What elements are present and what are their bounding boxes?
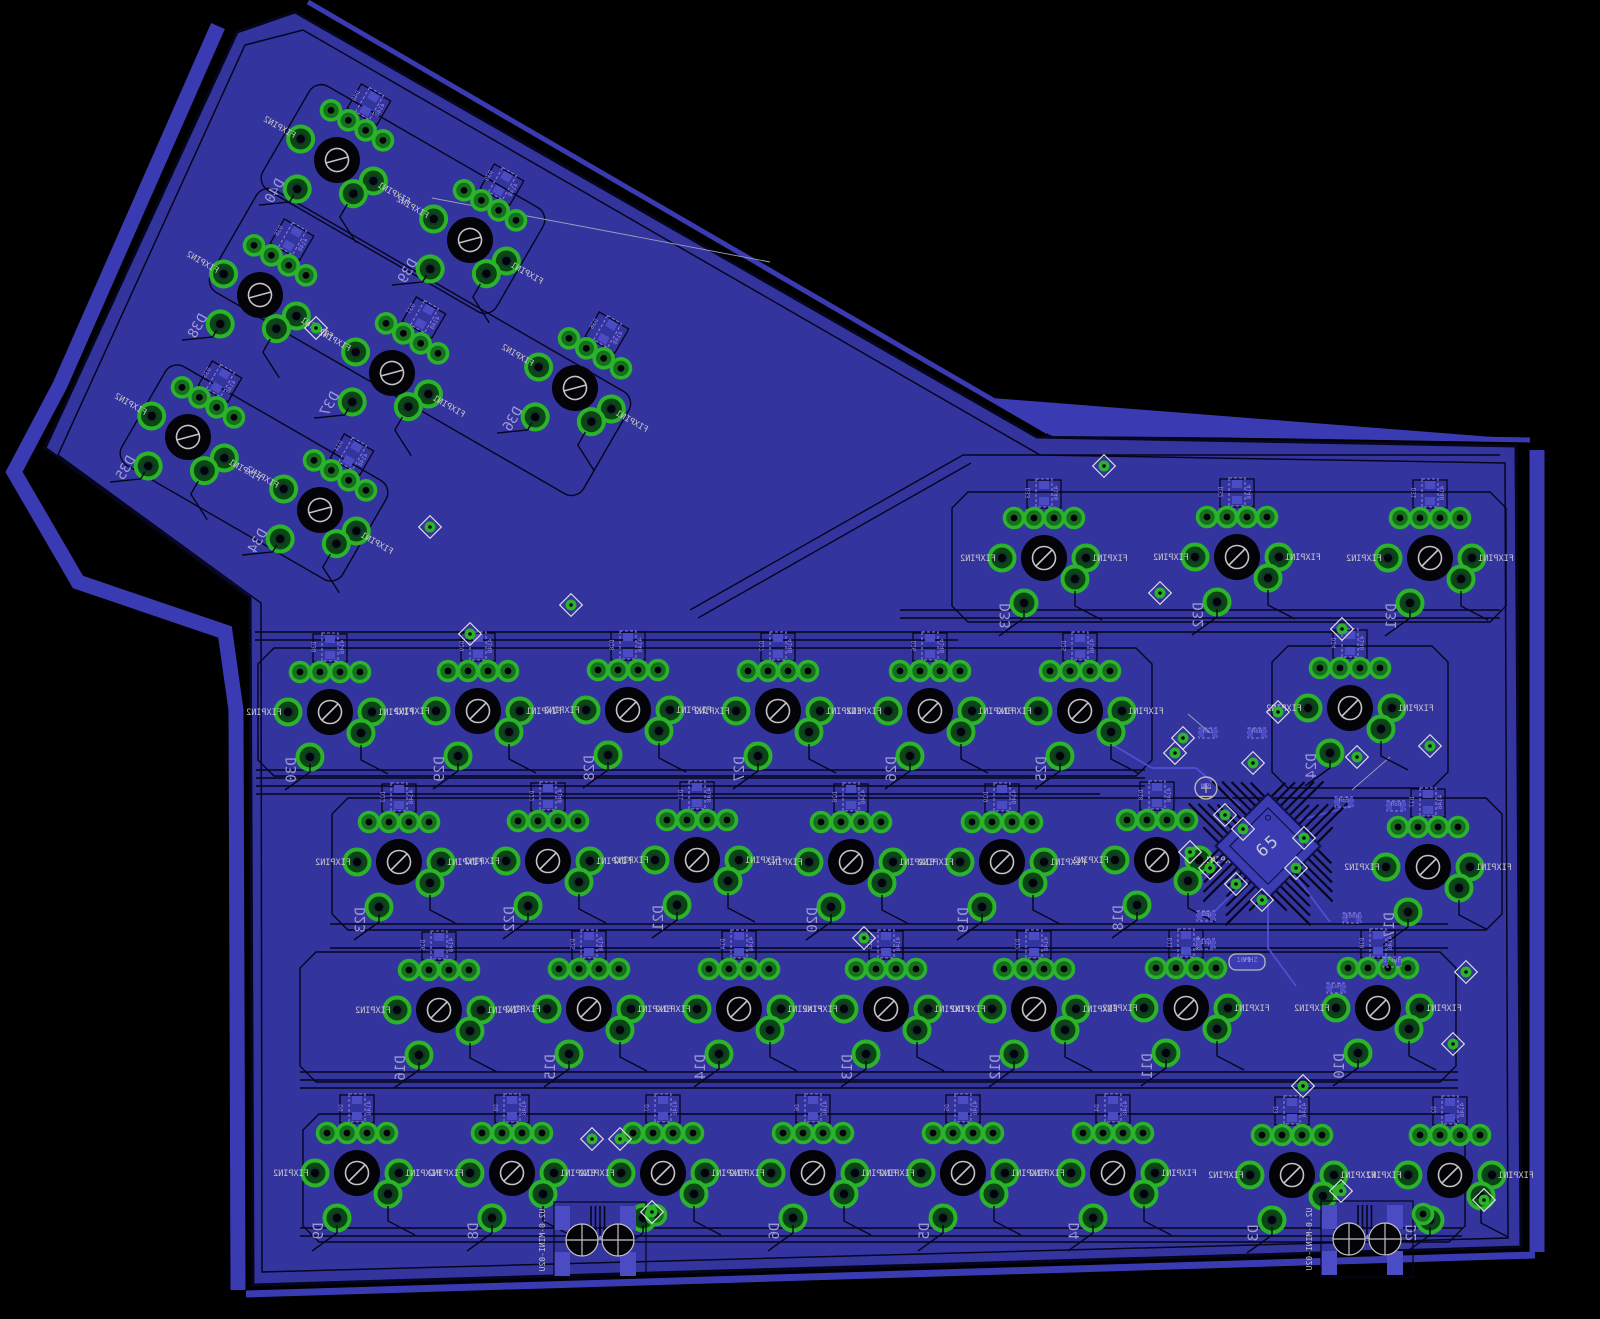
- through-hole-pad: [1449, 567, 1474, 592]
- through-hole-pad: [682, 1182, 707, 1207]
- switch-ref-label: D32: [1191, 602, 1207, 627]
- pin-pad: [509, 812, 528, 831]
- pin-pad: [1431, 1126, 1450, 1145]
- pin-pad: [1045, 509, 1064, 528]
- switch-ref-label: D16: [393, 1055, 409, 1080]
- switch-ref-label: D12: [988, 1054, 1004, 1079]
- diode-name-label: D24: [1331, 638, 1338, 649]
- pin-pad: [590, 960, 609, 979]
- silk-text: 16p: [1201, 939, 1212, 946]
- fixpin1-label: FIXPIN1: [1478, 554, 1514, 564]
- fixpin2-label: FIXPIN2: [879, 1169, 915, 1179]
- fixpin2-label: FIXPIN2: [1344, 863, 1380, 873]
- pin-pad: [479, 662, 498, 681]
- pin-pad: [1114, 1124, 1133, 1143]
- pin-pad: [1023, 813, 1042, 832]
- pin-pad: [358, 1124, 377, 1143]
- switch-ref-label: D19: [956, 907, 972, 932]
- diode-value-label: 4148: [1459, 1103, 1466, 1118]
- diode-value-label: 4148: [557, 789, 564, 804]
- pin-pad: [931, 662, 950, 681]
- switch-ref-label: D6: [767, 1223, 783, 1240]
- through-hole-pad: [1053, 1018, 1078, 1043]
- silk-text: 16MHZ: [1236, 956, 1257, 964]
- pin-pad: [624, 1124, 643, 1143]
- fixpin2-label: FIXPIN2: [355, 1006, 391, 1016]
- pin-pad: [589, 661, 608, 680]
- pin-pad: [847, 960, 866, 979]
- fixpin2-label: FIXPIN2: [613, 856, 649, 866]
- pin-pad: [440, 961, 459, 980]
- pin-pad: [1187, 959, 1206, 978]
- fixpin1-label: FIXPIN1: [1161, 1169, 1197, 1179]
- diode-name-label: D21: [678, 790, 685, 801]
- pin-pad: [351, 663, 370, 682]
- pin-pad: [1451, 1126, 1470, 1145]
- diode-name-label: D11: [1167, 938, 1174, 949]
- fixpin2-label: FIXPIN2: [505, 1005, 541, 1015]
- fixpin2-label: FIXPIN2: [273, 1169, 309, 1179]
- through-hole-pad: [716, 869, 741, 894]
- fixpin2-label: FIXPIN2: [464, 857, 500, 867]
- switch-ref-label: D14: [693, 1054, 709, 1079]
- through-hole-pad: [376, 1182, 401, 1207]
- pin-pad: [609, 661, 628, 680]
- switch-ref-label: D3: [1246, 1225, 1262, 1242]
- fixpin2-label: FIXPIN2: [802, 1005, 838, 1015]
- pin-pad: [684, 1124, 703, 1143]
- silk-text: MODSTRAY-SWITCH-ANSI-K.8X2.8MM: [0, 0, 59, 2]
- pin-pad: [867, 960, 886, 979]
- fixpin2-label: FIXPIN2: [1208, 1171, 1244, 1181]
- through-hole-pad: [949, 720, 974, 745]
- pin-pad: [799, 662, 818, 681]
- pcb-editor-canvas[interactable]: D404148 FIXPIN2FIXPIN1 D40 D394148: [0, 0, 1600, 1319]
- through-hole-pad: [1063, 567, 1088, 592]
- diode-value-label: 4148: [1166, 788, 1173, 803]
- pin-pad: [1258, 508, 1277, 527]
- switch-ref-label: D27: [732, 756, 748, 781]
- pin-pad: [779, 662, 798, 681]
- switch-ref-label: D30: [284, 757, 300, 782]
- diode-value-label: 4148: [1043, 937, 1050, 952]
- pin-pad: [499, 662, 518, 681]
- diode-value-label: 4148: [339, 640, 346, 655]
- pin-pad: [1238, 508, 1257, 527]
- fixpin1-label: FIXPIN1: [1285, 553, 1321, 563]
- pin-pad: [1451, 509, 1470, 528]
- through-hole-pad: [797, 720, 822, 745]
- diode-name-label: D14: [720, 939, 727, 950]
- fixpin2-label: FIXPIN2: [1153, 553, 1189, 563]
- diode-name-label: D20: [832, 792, 839, 803]
- pin-pad: [1198, 508, 1217, 527]
- pin-pad: [1015, 960, 1034, 979]
- pin-pad: [1167, 959, 1186, 978]
- fixpin2-label: FIXPIN2: [544, 706, 580, 716]
- diode-name-label: D25: [1061, 641, 1068, 652]
- pin-pad: [924, 1124, 943, 1143]
- diode-name-label: D7: [644, 1104, 651, 1112]
- through-hole-pad: [870, 871, 895, 896]
- pin-pad: [1253, 1126, 1272, 1145]
- pin-pad: [720, 960, 739, 979]
- diode-value-label: 4148: [860, 790, 867, 805]
- switch-ref-label: D29: [432, 756, 448, 781]
- diode-value-label: 4148: [1089, 639, 1096, 654]
- diode-name-label: D9: [338, 1104, 345, 1112]
- pin-pad: [1414, 1205, 1433, 1224]
- diode-name-label: D6: [794, 1104, 801, 1112]
- pin-pad: [951, 662, 970, 681]
- diode-value-label: 4148: [1011, 790, 1018, 805]
- pin-pad: [1041, 662, 1060, 681]
- diode-name-label: D4: [1094, 1104, 1101, 1112]
- pin-pad: [774, 1124, 793, 1143]
- pin-pad: [649, 661, 668, 680]
- switch-ref-label: D4: [1067, 1223, 1083, 1240]
- diode-value-label: 4148: [787, 639, 794, 654]
- diode-value-label: 4148: [1122, 1101, 1129, 1116]
- diode-value-label: 4148: [637, 638, 644, 653]
- pin-pad: [814, 1124, 833, 1143]
- pin-pad: [872, 813, 891, 832]
- pin-pad: [1411, 509, 1430, 528]
- pin-pad: [760, 960, 779, 979]
- pin-pad: [944, 1124, 963, 1143]
- pin-pad: [1094, 1124, 1113, 1143]
- through-hole-pad: [418, 871, 443, 896]
- through-hole-pad: [567, 870, 592, 895]
- pin-pad: [1351, 659, 1370, 678]
- switch-ref-label: D33: [998, 603, 1014, 628]
- diode-value-label: 4148: [706, 788, 713, 803]
- through-hole-pad: [758, 1018, 783, 1043]
- pin-pad: [907, 960, 926, 979]
- pin-pad: [338, 1124, 357, 1143]
- pin-pad: [1313, 1126, 1332, 1145]
- through-hole-pad: [832, 1182, 857, 1207]
- fixpin2-label: FIXPIN2: [1346, 554, 1382, 564]
- fixpin2-label: FIXPIN2: [996, 707, 1032, 717]
- diode-value-label: 4148: [487, 639, 494, 654]
- diode-value-label: 4148: [1246, 485, 1253, 500]
- through-hole-pad: [1311, 1184, 1336, 1209]
- pin-pad: [1471, 1126, 1490, 1145]
- pin-pad: [318, 1124, 337, 1143]
- through-hole-pad: [349, 721, 374, 746]
- pin-pad: [1431, 509, 1450, 528]
- switch-ref-label: D11: [1140, 1053, 1156, 1078]
- diode-name-label: D32: [1218, 487, 1225, 498]
- pin-pad: [1118, 811, 1137, 830]
- pin-pad: [891, 662, 910, 681]
- crystal-footprint[interactable]: Y1 16MHZ: [1229, 954, 1265, 970]
- pin-pad: [1065, 509, 1084, 528]
- pin-pad: [964, 1124, 983, 1143]
- through-hole-pad: [1099, 720, 1124, 745]
- pin-pad: [658, 811, 677, 830]
- pin-pad: [1178, 811, 1197, 830]
- silk-text: 100n: [1345, 913, 1360, 920]
- pin-pad: [380, 813, 399, 832]
- switch-ref-label: D15: [543, 1054, 559, 1079]
- diode-name-label: D8: [493, 1104, 500, 1112]
- switch-ref-label: D2: [1404, 1225, 1420, 1242]
- pin-pad: [1081, 662, 1100, 681]
- fixpin1-label: FIXPIN1: [1498, 1171, 1534, 1181]
- silk-text: 16p: [1201, 911, 1212, 918]
- pin-pad: [1409, 818, 1428, 837]
- pin-pad: [513, 1124, 532, 1143]
- pin-pad: [1311, 659, 1330, 678]
- pin-pad: [832, 813, 851, 832]
- pin-pad: [549, 812, 568, 831]
- through-hole-pad: [1447, 876, 1472, 901]
- diode-value-label: 4148: [598, 937, 605, 952]
- connector-name-label: U2.0-MINI-02U: [1305, 1208, 1314, 1271]
- diode-name-label: D5: [944, 1104, 951, 1112]
- fixpin2-label: FIXPIN2: [428, 1169, 464, 1179]
- diode-value-label: 4148: [521, 1101, 528, 1116]
- diode-value-label: 4148: [366, 1101, 373, 1116]
- diode-name-label: D22: [529, 791, 536, 802]
- pin-pad: [1005, 509, 1024, 528]
- pin-pad: [493, 1124, 512, 1143]
- pin-pad: [739, 662, 758, 681]
- pin-pad: [610, 960, 629, 979]
- switch-ref-label: D8: [466, 1223, 482, 1240]
- pin-pad: [529, 812, 548, 831]
- pin-pad: [629, 661, 648, 680]
- diode-name-label: D12: [1015, 939, 1022, 950]
- pin-pad: [420, 813, 439, 832]
- fixpin1-label: FIXPIN1: [1128, 707, 1164, 717]
- pin-pad: [473, 1124, 492, 1143]
- pin-pad: [460, 961, 479, 980]
- pin-pad: [1359, 959, 1378, 978]
- pin-pad: [644, 1124, 663, 1143]
- switch-ref-label: D28: [582, 755, 598, 780]
- pin-pad: [1055, 960, 1074, 979]
- switch-ref-label: D5: [917, 1223, 933, 1240]
- pin-pad: [963, 813, 982, 832]
- pin-pad: [911, 662, 930, 681]
- silk-text: R68: [1391, 801, 1402, 808]
- pin-pad: [700, 960, 719, 979]
- diode-name-label: D18: [1138, 790, 1145, 801]
- fixpin2-label: FIXPIN2: [1073, 856, 1109, 866]
- diode-name-label: D29: [459, 641, 466, 652]
- fixpin2-label: FIXPIN2: [1266, 704, 1302, 714]
- diode-name-label: D23: [380, 792, 387, 803]
- switch-ref-label: D18: [1111, 905, 1127, 930]
- diode-value-label: 4148: [748, 937, 755, 952]
- diode-name-label: D30: [311, 642, 318, 653]
- fixpin2-label: FIXPIN2: [960, 554, 996, 564]
- diode-name-label: D31: [1411, 488, 1418, 499]
- diode-name-label: D27: [759, 641, 766, 652]
- diode-value-label: 4148: [822, 1101, 829, 1116]
- pin-pad: [1147, 959, 1166, 978]
- diode-name-label: D19: [983, 792, 990, 803]
- switch-ref-label: D25: [1034, 756, 1050, 781]
- pin-pad: [569, 812, 588, 831]
- fixpin2-label: FIXPIN2: [246, 708, 282, 718]
- pin-pad: [1273, 1126, 1292, 1145]
- fixpin1-label: FIXPIN1: [1476, 863, 1512, 873]
- through-hole-pad: [608, 1018, 633, 1043]
- pin-pad: [1035, 960, 1054, 979]
- switch-ref-label: D31: [1384, 603, 1400, 628]
- pin-pad: [812, 813, 831, 832]
- diode-name-label: D17: [1409, 797, 1416, 808]
- diode-value-label: 4148: [408, 790, 415, 805]
- pin-pad: [550, 960, 569, 979]
- diode-name-label: D15: [570, 939, 577, 950]
- pin-pad: [718, 811, 737, 830]
- pin-pad: [1134, 1124, 1153, 1143]
- diode-name-label: D33: [1025, 488, 1032, 499]
- pin-pad: [664, 1124, 683, 1143]
- through-hole-pad: [1021, 871, 1046, 896]
- pin-pad: [698, 811, 717, 830]
- diode-value-label: 4148: [1437, 795, 1444, 810]
- fixpin2-label: FIXPIN2: [767, 858, 803, 868]
- through-hole-pad: [905, 1018, 930, 1043]
- through-hole-pad: [1132, 1182, 1157, 1207]
- fixpin2-label: FIXPIN2: [1102, 1004, 1138, 1014]
- pin-pad: [995, 960, 1014, 979]
- pin-pad: [1061, 662, 1080, 681]
- pin-pad: [984, 1124, 1003, 1143]
- pin-pad: [400, 813, 419, 832]
- diode-value-label: 4148: [895, 937, 902, 952]
- diode-value-label: 4148: [939, 639, 946, 654]
- fixpin2-label: FIXPIN2: [694, 707, 730, 717]
- pin-pad: [852, 813, 871, 832]
- through-hole-pad: [1256, 566, 1281, 591]
- diode-value-label: 4148: [1439, 486, 1446, 501]
- diode-value-label: 4148: [1301, 1103, 1308, 1118]
- switch-ref-label: D13: [840, 1054, 856, 1079]
- through-hole-pad: [531, 1182, 556, 1207]
- pin-pad: [1371, 659, 1390, 678]
- pin-pad: [1449, 818, 1468, 837]
- fixpin2-label: FIXPIN2: [950, 1005, 986, 1015]
- pin-pad: [1389, 818, 1408, 837]
- fixpin2-label: FIXPIN2: [1366, 1171, 1402, 1181]
- silk-text: 1uF: [1331, 983, 1342, 990]
- diode-name-label: D16: [420, 940, 427, 951]
- fixpin1-label: FIXPIN1: [1234, 1004, 1270, 1014]
- pin-pad: [331, 663, 350, 682]
- pin-pad: [1391, 509, 1410, 528]
- through-hole-pad: [458, 1019, 483, 1044]
- fixpin2-label: FIXPIN2: [579, 1169, 615, 1179]
- pin-pad: [420, 961, 439, 980]
- fixpin2-label: FIXPIN2: [655, 1005, 691, 1015]
- silk-text: 12: [1202, 783, 1210, 790]
- diode-name-label: D26: [911, 641, 918, 652]
- through-hole-pad: [1176, 869, 1201, 894]
- fixpin2-label: FIXPIN2: [1029, 1169, 1065, 1179]
- silk-text: 0.1uF: [1383, 957, 1401, 964]
- silk-text: R61: [1203, 728, 1214, 735]
- fixpin2-label: FIXPIN2: [315, 858, 351, 868]
- diode-value-label: 4148: [1387, 936, 1394, 951]
- switch-ref-label: D22: [502, 906, 518, 931]
- pin-pad: [400, 961, 419, 980]
- switch-ref-label: D9: [311, 1223, 327, 1240]
- switch-ref-label: D24: [1304, 753, 1320, 778]
- pin-pad: [1207, 959, 1226, 978]
- fixpin2-label: FIXPIN2: [729, 1169, 765, 1179]
- through-hole-pad: [1205, 1017, 1230, 1042]
- pin-pad: [1003, 813, 1022, 832]
- pin-pad: [1411, 1126, 1430, 1145]
- pin-pad: [794, 1124, 813, 1143]
- pin-pad: [1074, 1124, 1093, 1143]
- pin-pad: [759, 662, 778, 681]
- fixpin2-label: FIXPIN2: [1294, 1004, 1330, 1014]
- through-hole-pad: [1397, 1017, 1422, 1042]
- pin-pad: [887, 960, 906, 979]
- pin-pad: [1138, 811, 1157, 830]
- diode-value-label: 4148: [1053, 486, 1060, 501]
- pin-pad: [360, 813, 379, 832]
- diode-value-label: 4148: [672, 1101, 679, 1116]
- pin-pad: [459, 662, 478, 681]
- fixpin1-label: FIXPIN1: [1092, 554, 1128, 564]
- pcb-canvas[interactable]: D404148 FIXPIN2FIXPIN1 D40 D394148: [0, 0, 1600, 1319]
- fixpin1-label: FIXPIN1: [1426, 1004, 1462, 1014]
- pin-pad: [1293, 1126, 1312, 1145]
- diode-value-label: 4148: [448, 938, 455, 953]
- silk-text: R66: [1252, 728, 1263, 735]
- pin-pad: [1025, 509, 1044, 528]
- pin-pad: [1218, 508, 1237, 527]
- fixpin1-label: FIXPIN1: [1398, 704, 1434, 714]
- switch-ref-label: D20: [805, 907, 821, 932]
- switch-ref-label: D26: [884, 756, 900, 781]
- diode-name-label: D10: [1359, 938, 1366, 949]
- pin-pad: [1429, 818, 1448, 837]
- through-hole-pad: [982, 1182, 1007, 1207]
- pin-pad: [1101, 662, 1120, 681]
- switch-ref-label: D23: [353, 907, 369, 932]
- pin-pad: [740, 960, 759, 979]
- pin-pad: [291, 663, 310, 682]
- through-hole-pad: [647, 719, 672, 744]
- diode-name-label: D2: [1431, 1106, 1438, 1114]
- pin-pad: [834, 1124, 853, 1143]
- connector-name-label: U2.0-MINI-02U: [538, 1209, 547, 1272]
- pin-pad: [533, 1124, 552, 1143]
- through-hole-pad: [497, 720, 522, 745]
- pin-pad: [1158, 811, 1177, 830]
- through-hole-pad: [1369, 717, 1394, 742]
- diode-value-label: 4148: [1359, 636, 1366, 651]
- fixpin2-label: FIXPIN2: [846, 707, 882, 717]
- pin-pad: [378, 1124, 397, 1143]
- pin-pad: [1339, 959, 1358, 978]
- diode-name-label: D3: [1273, 1106, 1280, 1114]
- silk-text: R65: [1339, 797, 1350, 804]
- pin-pad: [983, 813, 1002, 832]
- pin-pad: [439, 662, 458, 681]
- pin-pad: [678, 811, 697, 830]
